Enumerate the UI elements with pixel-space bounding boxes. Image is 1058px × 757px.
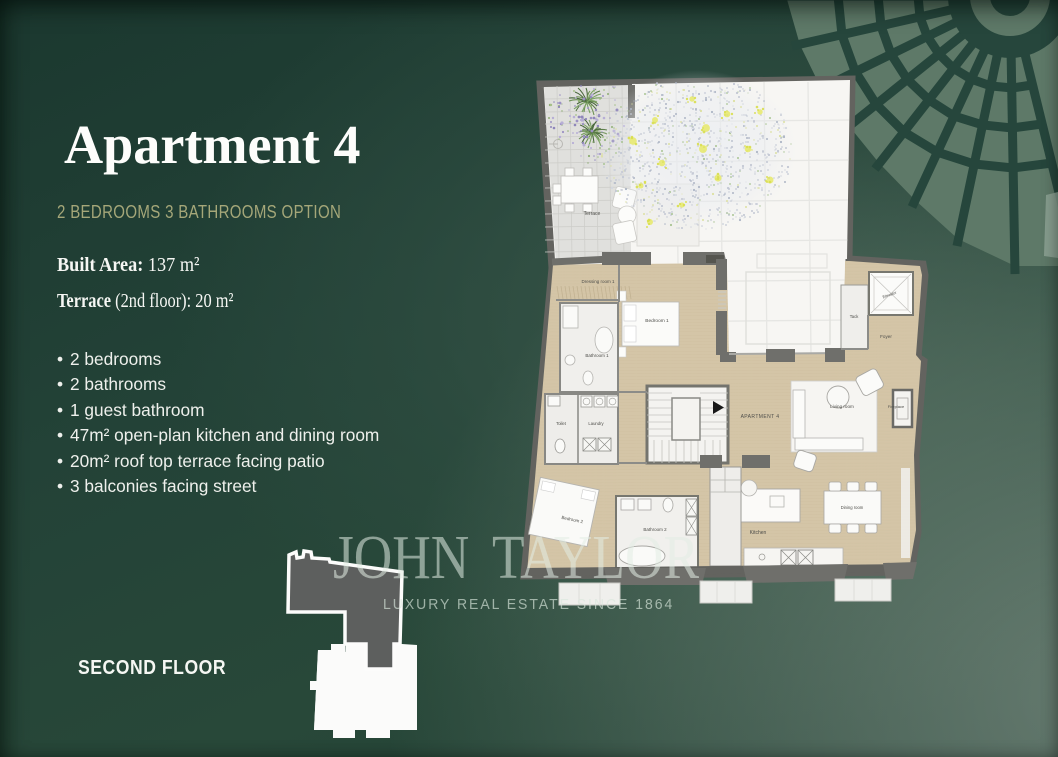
svg-text:Bedroom 1: Bedroom 1 [645,318,669,324]
svg-text:Terrace: Terrace [584,211,601,217]
svg-text:Foyer: Foyer [880,334,892,339]
svg-text:Toilet: Toilet [556,421,567,426]
svg-text:Dressing room 1: Dressing room 1 [581,279,615,284]
svg-text:Kitchen: Kitchen [750,530,767,536]
svg-text:Bathroom 1: Bathroom 1 [585,353,609,358]
svg-text:Tack: Tack [850,314,860,319]
svg-text:Laundry: Laundry [588,421,604,426]
svg-text:APARTMENT 4: APARTMENT 4 [741,414,780,420]
svg-text:Dining room: Dining room [841,505,864,510]
svg-text:Fireplace: Fireplace [888,404,905,409]
svg-text:Living room: Living room [830,404,854,409]
